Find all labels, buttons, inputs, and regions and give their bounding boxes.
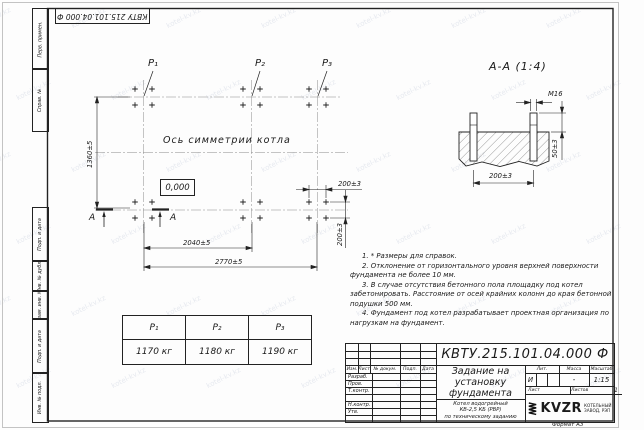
frame-box-podp-data-1: Подп. и дата — [32, 207, 49, 262]
drawing-title: Задание на установку фундамента — [436, 365, 526, 400]
kvzr-logo-icon — [527, 401, 538, 416]
note-2: 2. Отклонение от горизонтального уровня … — [350, 262, 614, 281]
kvzr-logo: KVZR КОТЕЛЬНЫЙ ЗАВОД, РЭП — [527, 401, 611, 416]
logo-caption: КОТЕЛЬНЫЙ ЗАВОД, РЭП — [584, 403, 611, 413]
section-letter-left: А — [89, 214, 95, 223]
dim-bolt-vertical: 200±3 — [337, 223, 344, 246]
level-mark: 0,000 — [160, 179, 195, 196]
anchor-bolt-marks — [132, 86, 329, 221]
section-view — [459, 113, 549, 167]
tb-cell — [400, 415, 421, 422]
load-table-header-p2: P₂ — [186, 316, 249, 340]
frame-box-vzam-inv: Взам. инв. № — [32, 290, 49, 320]
frame-box-inv-dubl: Инв. № дубл. — [32, 260, 49, 292]
note-4: 4. Фундамент под котел разрабатывает про… — [350, 309, 614, 328]
massa-value: - — [559, 373, 590, 387]
tb-cell — [420, 415, 437, 422]
masshtab-value: 1:15 — [589, 373, 614, 387]
frame-box-podp-data-2: Подп. и дата — [32, 318, 49, 374]
logo-cell: KVZR КОТЕЛЬНЫЙ ЗАВОД, РЭП — [525, 394, 614, 422]
doc-number: КВТУ.215.101.04.000 Ф — [436, 344, 614, 366]
tb-cell — [370, 415, 401, 422]
load-label-p3: P₃ — [322, 59, 332, 69]
section-letter-right: А — [170, 214, 176, 223]
drawing-sheet: kotel-kv.kzkotel-kv.kzkotel-kv.kzkotel-k… — [0, 0, 644, 430]
logo-text: KVZR — [540, 401, 582, 416]
plan-axes — [95, 80, 348, 233]
load-table-value-row: 1170 кг 1180 кг 1190 кг — [123, 340, 312, 365]
load-label-p2: P₂ — [255, 59, 265, 69]
dim-2770: 2770±5 — [215, 259, 242, 266]
load-label-p1: P₁ — [148, 59, 158, 69]
load-table-header-row: P₁ P₂ P₃ — [123, 316, 312, 340]
note-1: 1. * Размеры для справок. — [350, 252, 614, 262]
dim-bolt-horizontal: 200±3 — [338, 181, 361, 188]
load-table: P₁ P₂ P₃ 1170 кг 1180 кг 1190 кг — [122, 315, 312, 365]
frame-box-inv-podl: Инв. № подл. — [32, 372, 49, 423]
bolt-thread-label: М16 — [548, 91, 563, 98]
load-table-header-p3: P₃ — [249, 316, 312, 340]
anchor-bolt-left — [470, 113, 477, 161]
sheets-value: 1 — [614, 387, 618, 394]
drawing-subject: Котел водогрейный КВ-2,5 КБ (РВР) по тех… — [436, 399, 526, 422]
top-stamp: КВТУ 215.101.04.000 Ф — [55, 8, 150, 24]
anchor-bolt-right — [530, 113, 537, 161]
frame-box-sprav: Справ. № — [32, 68, 49, 132]
plan-dimensions — [94, 97, 362, 271]
frame-box-perv-primen: Перв. примен. — [32, 8, 49, 70]
dim-section-width: 200±3 — [489, 173, 512, 180]
load-leaders — [144, 71, 327, 96]
load-table-value-p2: 1180 кг — [186, 340, 249, 365]
dim-2040: 2040±5 — [183, 240, 210, 247]
symmetry-axis-label: Ось симметрии котла — [163, 136, 291, 146]
load-table-header-p1: P₁ — [123, 316, 186, 340]
load-table-value-p1: 1170 кг — [123, 340, 186, 365]
title-block: Изм. Лист № докум. Подп. Дата Разраб. Пр… — [345, 343, 615, 423]
notes-block: 1. * Размеры для справок. 2. Отклонение … — [350, 252, 614, 328]
top-stamp-number: КВТУ 215.101.04.000 Ф — [57, 12, 148, 21]
note-3: 3. В случае отсутствия бетонного пола пл… — [350, 281, 614, 310]
tb-row-blank — [346, 415, 373, 422]
dim-protrusion: 50±3 — [552, 139, 559, 158]
load-table-value-p3: 1190 кг — [249, 340, 312, 365]
dim-1360: 1360±5 — [87, 141, 94, 168]
section-title: А-А (1:4) — [489, 61, 547, 72]
